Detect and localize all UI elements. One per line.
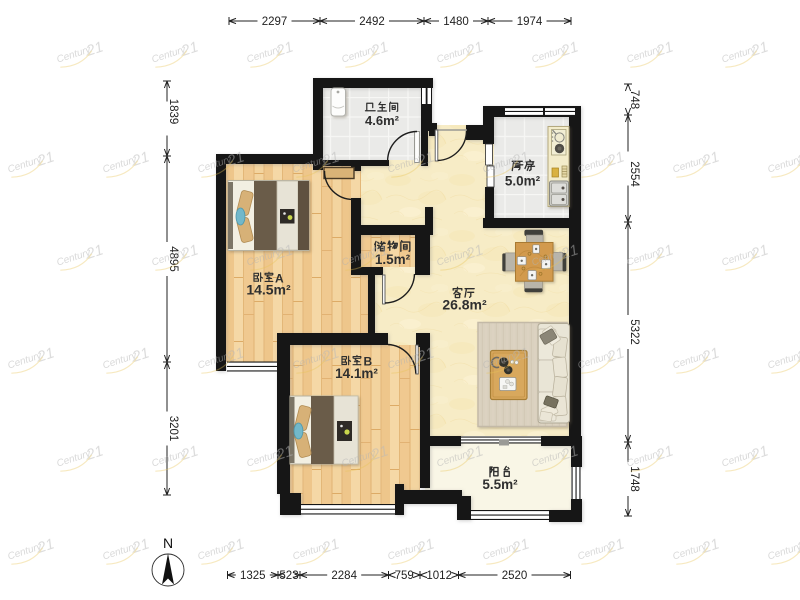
- svg-text:3201: 3201: [167, 416, 179, 442]
- svg-text:2492: 2492: [359, 16, 385, 28]
- svg-text:26.8m²: 26.8m²: [442, 297, 487, 313]
- svg-text:1480: 1480: [443, 16, 469, 28]
- svg-text:759: 759: [395, 570, 414, 582]
- svg-text:5322: 5322: [628, 319, 640, 345]
- svg-text:N: N: [163, 535, 173, 551]
- svg-text:1325: 1325: [240, 570, 266, 582]
- svg-text:4.6m²: 4.6m²: [365, 113, 400, 128]
- svg-text:5.0m²: 5.0m²: [505, 174, 541, 189]
- svg-text:5.5m²: 5.5m²: [482, 477, 518, 492]
- svg-text:1974: 1974: [517, 16, 543, 28]
- svg-text:523: 523: [279, 570, 298, 582]
- svg-text:748: 748: [628, 90, 640, 109]
- svg-text:1012: 1012: [426, 570, 452, 582]
- svg-text:2520: 2520: [502, 570, 528, 582]
- svg-text:1839: 1839: [167, 99, 179, 125]
- svg-text:2297: 2297: [262, 16, 288, 28]
- svg-text:14.1m²: 14.1m²: [335, 366, 378, 381]
- svg-text:2554: 2554: [628, 161, 640, 187]
- svg-text:14.5m²: 14.5m²: [246, 282, 291, 298]
- svg-text:2284: 2284: [331, 570, 357, 582]
